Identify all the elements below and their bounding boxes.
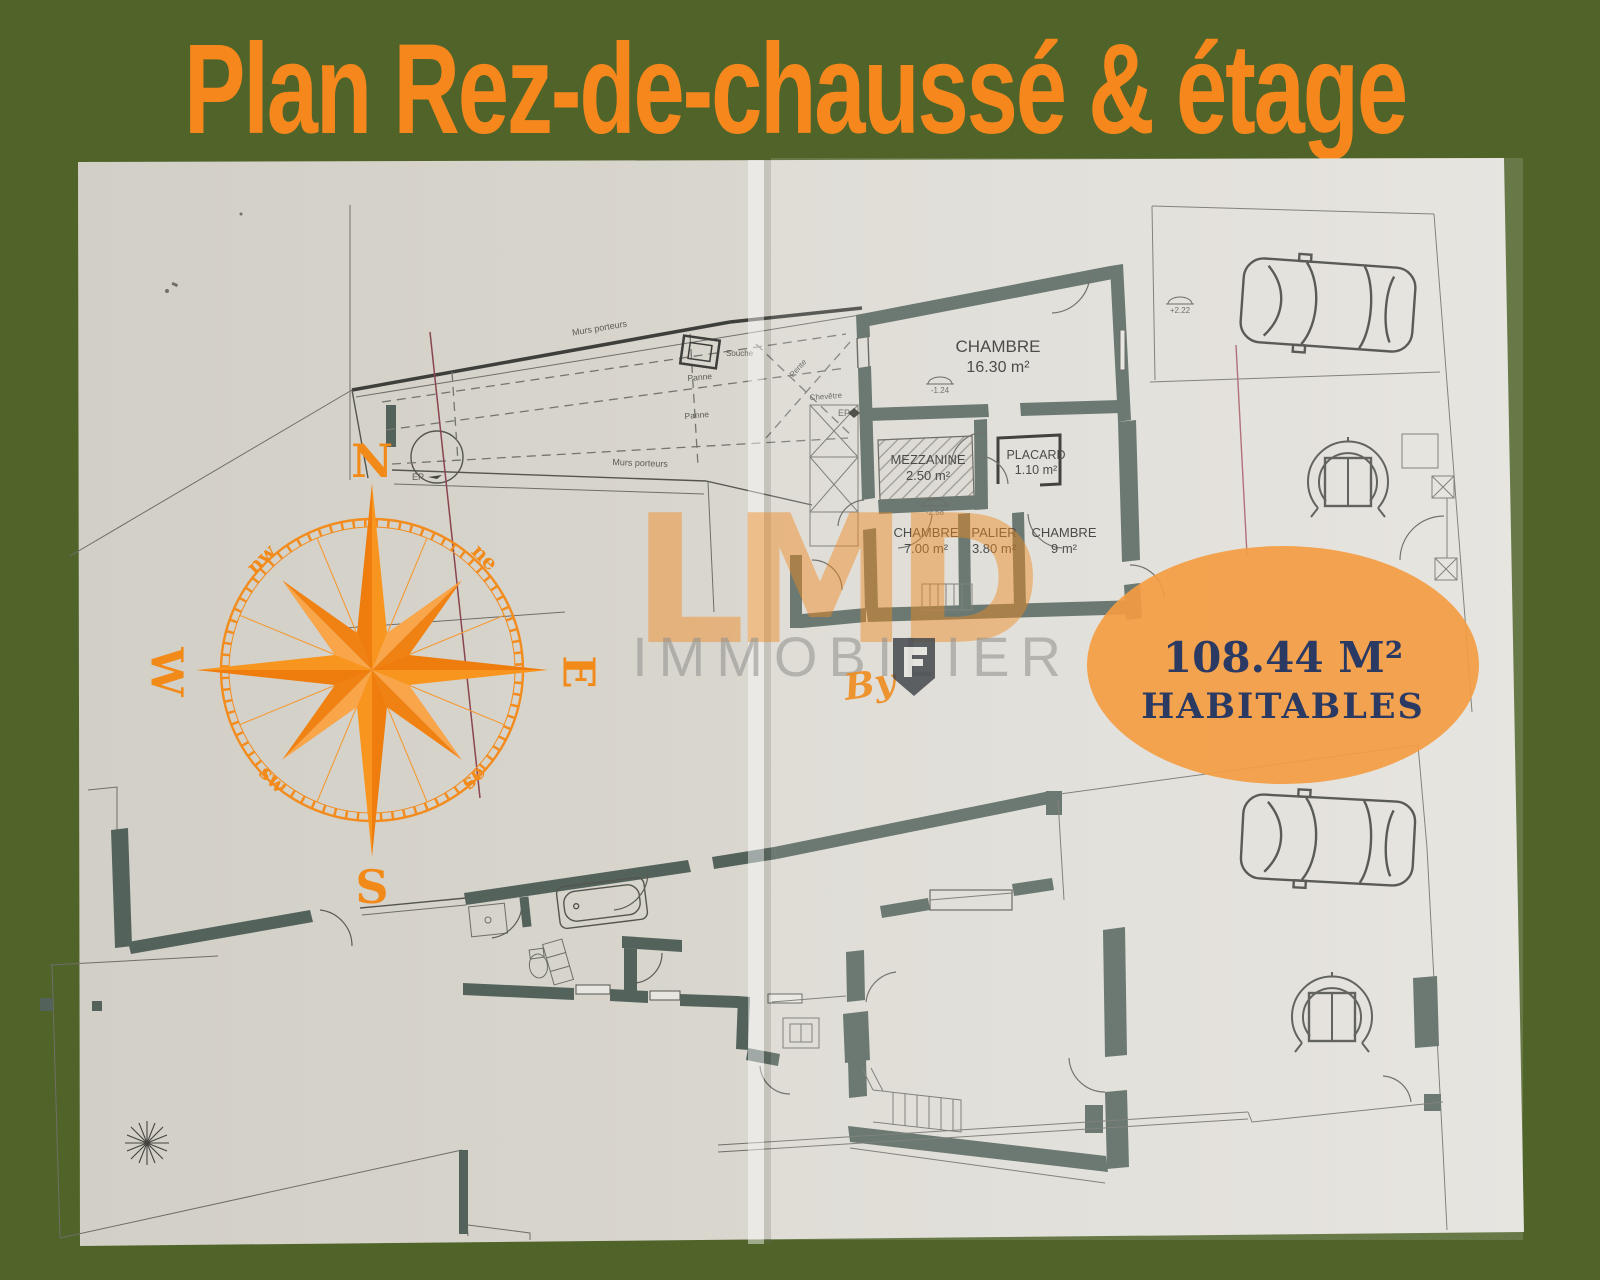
area-badge-value: 108.44 M² [1163, 633, 1403, 682]
label-ep-2: EP [412, 472, 424, 482]
area-badge-label: HABITABLES [1141, 686, 1425, 727]
compass-north-label: N [351, 434, 393, 488]
compass-west-label: W [141, 646, 192, 697]
area-badge: 108.44 M² HABITABLES [1087, 546, 1479, 784]
screenshot-root: Plan Rez-de-chaussé & étage [0, 0, 1600, 1280]
floorplan-photo: Plan Rez-de-chaussé & étage [0, 0, 1600, 1280]
page-title: Plan Rez-de-chaussé & étage [184, 17, 1406, 160]
plan-paper: Murs porteurs Murs porteurs Panne Panne … [40, 158, 1524, 1246]
watermark-by: By [840, 660, 900, 709]
compass-south-label: S [355, 860, 388, 914]
compass-east-label: E [553, 655, 604, 689]
label-murs-porteurs-bottom: Murs porteurs [612, 457, 668, 469]
agency-watermark: LMD IMMOBILIER By [632, 477, 1072, 709]
